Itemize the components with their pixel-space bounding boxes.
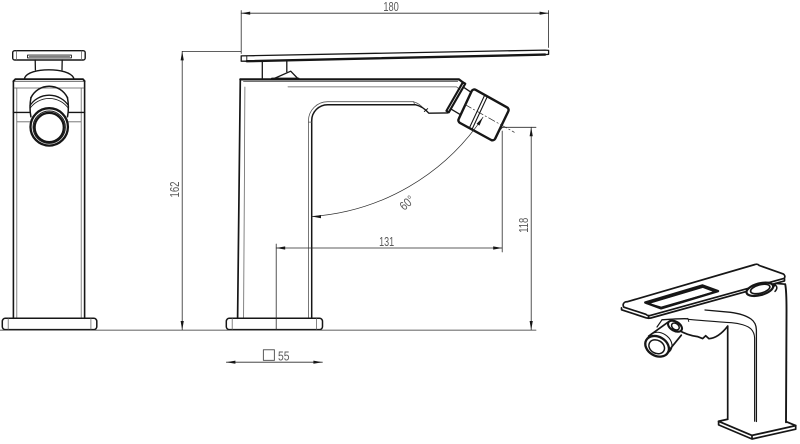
- svg-text:180: 180: [383, 0, 399, 14]
- svg-text:118: 118: [517, 218, 531, 233]
- svg-text:60°: 60°: [397, 193, 418, 213]
- svg-text:55: 55: [278, 349, 290, 363]
- svg-text:131: 131: [379, 235, 394, 249]
- svg-text:162: 162: [168, 181, 182, 197]
